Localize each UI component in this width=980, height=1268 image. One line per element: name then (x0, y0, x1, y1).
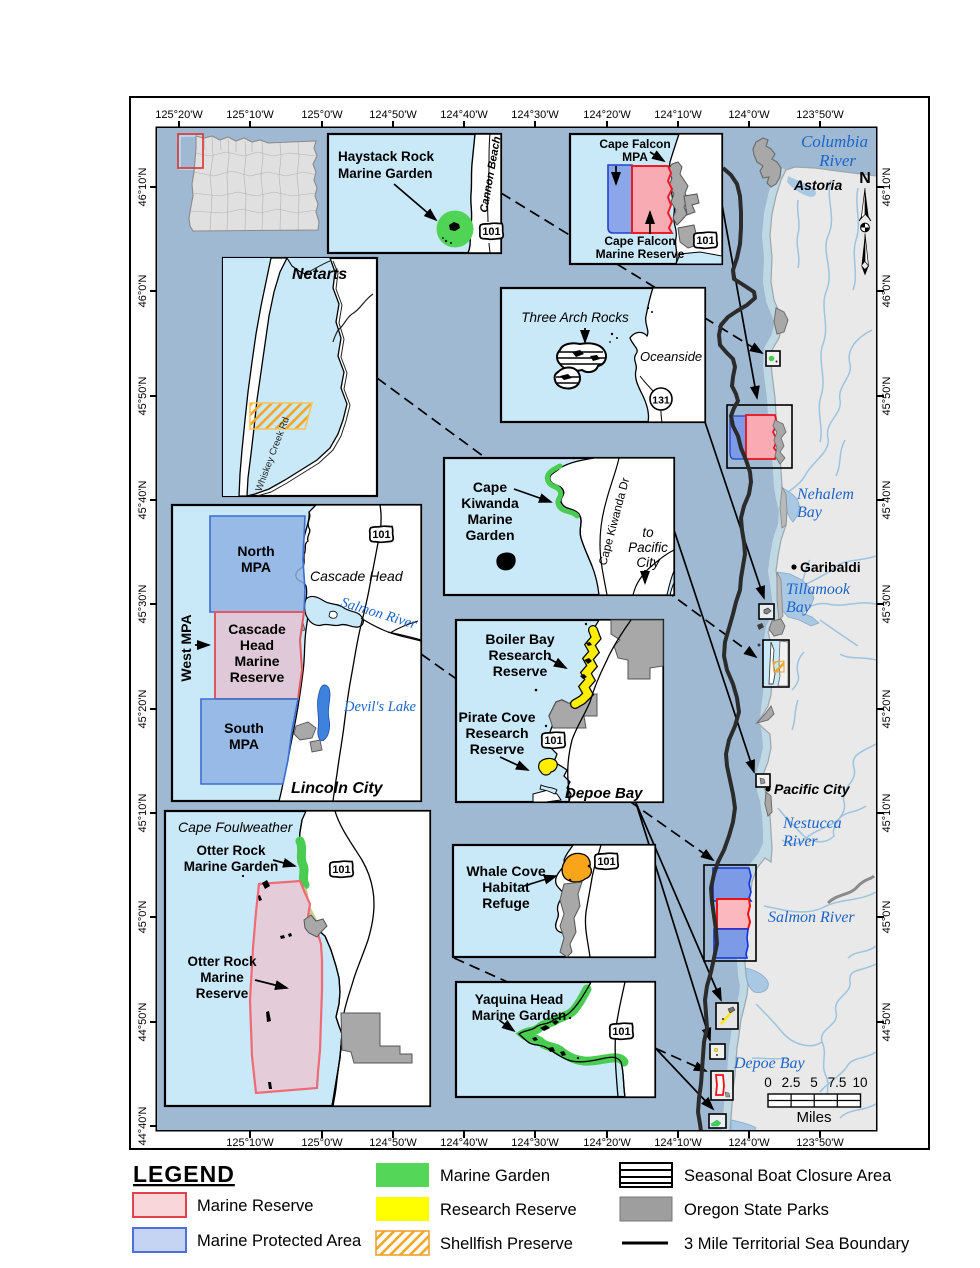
svg-text:N: N (859, 170, 871, 187)
svg-text:Pirate Cove: Pirate Cove (458, 709, 535, 725)
svg-text:Pacific City: Pacific City (774, 781, 851, 797)
svg-text:45°50'N: 45°50'N (137, 376, 149, 415)
svg-text:10: 10 (852, 1075, 867, 1090)
svg-text:Reserve: Reserve (470, 741, 525, 757)
svg-text:MPA: MPA (229, 736, 259, 752)
svg-text:44°50'N: 44°50'N (137, 1002, 149, 1041)
svg-text:7.5: 7.5 (828, 1075, 847, 1090)
svg-text:123°50'W: 123°50'W (796, 109, 844, 121)
svg-text:LEGEND: LEGEND (133, 1161, 235, 1187)
svg-text:Garibaldi: Garibaldi (800, 559, 861, 575)
svg-text:Nehalem: Nehalem (796, 486, 854, 503)
svg-text:Marine Reserve: Marine Reserve (596, 247, 685, 261)
svg-text:Marine Garden: Marine Garden (472, 1008, 567, 1023)
svg-text:125°20'W: 125°20'W (155, 109, 203, 121)
svg-text:to: to (642, 525, 654, 540)
svg-text:Marine: Marine (467, 511, 512, 527)
svg-text:South: South (224, 720, 264, 736)
svg-text:Cape Foulweather: Cape Foulweather (178, 819, 294, 835)
svg-text:Seasonal Boat Closure Area: Seasonal Boat Closure Area (684, 1167, 892, 1185)
svg-text:Tillamook: Tillamook (786, 581, 851, 598)
svg-text:Oregon State Parks: Oregon State Parks (684, 1201, 829, 1219)
svg-text:Research: Research (465, 725, 528, 741)
svg-text:Yaquina Head: Yaquina Head (475, 992, 564, 1007)
svg-text:45°0'N: 45°0'N (137, 901, 149, 934)
svg-text:Pacific: Pacific (628, 540, 668, 555)
svg-text:MPA: MPA (241, 559, 271, 575)
svg-text:44°40'N: 44°40'N (137, 1106, 149, 1145)
svg-text:Marine: Marine (200, 970, 244, 985)
svg-text:124°20'W: 124°20'W (583, 109, 631, 121)
svg-text:5: 5 (810, 1075, 818, 1090)
svg-text:Research: Research (488, 647, 551, 663)
svg-text:45°30'N: 45°30'N (137, 584, 149, 623)
svg-text:Lincoln City: Lincoln City (291, 780, 384, 797)
svg-text:Bay: Bay (786, 599, 812, 616)
svg-text:Cascade Head: Cascade Head (310, 568, 404, 584)
svg-text:124°50'W: 124°50'W (369, 1137, 417, 1149)
svg-text:124°10'W: 124°10'W (654, 109, 702, 121)
svg-text:124°20'W: 124°20'W (583, 1137, 631, 1149)
svg-text:Cape Falcon: Cape Falcon (599, 137, 670, 151)
svg-text:Haystack Rock: Haystack Rock (338, 149, 435, 164)
svg-text:Otter Rock: Otter Rock (196, 843, 266, 858)
svg-text:Salmon River: Salmon River (768, 909, 855, 926)
svg-text:Research Reserve: Research Reserve (440, 1201, 577, 1219)
svg-text:45°20'N: 45°20'N (137, 689, 149, 728)
svg-text:North: North (237, 543, 274, 559)
svg-text:124°0'W: 124°0'W (728, 109, 770, 121)
svg-text:Netarts: Netarts (292, 266, 347, 283)
svg-text:Nestucca: Nestucca (782, 815, 842, 832)
svg-text:Refuge: Refuge (482, 895, 530, 911)
svg-text:Marine Garden: Marine Garden (184, 859, 279, 874)
svg-text:Marine: Marine (234, 653, 279, 669)
svg-text:131: 131 (652, 395, 670, 407)
svg-text:46°10'N: 46°10'N (137, 167, 149, 206)
svg-text:Bay: Bay (797, 504, 823, 521)
svg-text:Whale Cove: Whale Cove (466, 863, 546, 879)
svg-text:Devil's Lake: Devil's Lake (343, 699, 417, 715)
svg-text:Cascade: Cascade (228, 621, 286, 637)
svg-text:46°0'N: 46°0'N (137, 275, 149, 308)
svg-text:Kiwanda: Kiwanda (461, 495, 519, 511)
svg-text:Head: Head (240, 637, 274, 653)
svg-text:124°10'W: 124°10'W (654, 1137, 702, 1149)
svg-text:124°40'W: 124°40'W (440, 109, 488, 121)
svg-text:Shellfish Preserve: Shellfish Preserve (440, 1235, 573, 1253)
svg-text:River: River (782, 833, 818, 850)
svg-text:Reserve: Reserve (230, 669, 285, 685)
svg-text:45°40'N: 45°40'N (137, 480, 149, 519)
svg-text:Reserve: Reserve (493, 663, 548, 679)
svg-text:Marine Reserve: Marine Reserve (197, 1197, 313, 1215)
svg-text:Astoria: Astoria (793, 177, 842, 193)
svg-text:124°0'W: 124°0'W (728, 1137, 770, 1149)
svg-text:125°10'W: 125°10'W (226, 1137, 274, 1149)
svg-text:2.5: 2.5 (782, 1075, 801, 1090)
svg-text:City: City (636, 555, 660, 570)
svg-text:125°0'W: 125°0'W (301, 109, 343, 121)
svg-text:45°10'N: 45°10'N (137, 793, 149, 832)
svg-text:Otter Rock: Otter Rock (187, 954, 257, 969)
svg-text:0: 0 (764, 1075, 772, 1090)
svg-text:Habitat: Habitat (482, 879, 530, 895)
svg-text:124°40'W: 124°40'W (440, 1137, 488, 1149)
svg-text:123°50'W: 123°50'W (796, 1137, 844, 1149)
svg-text:River: River (818, 151, 856, 170)
svg-text:3 Mile Territorial Sea Boundar: 3 Mile Territorial Sea Boundary (684, 1235, 910, 1253)
svg-text:124°30'W: 124°30'W (511, 109, 559, 121)
svg-text:Marine Garden: Marine Garden (338, 166, 433, 181)
svg-text:124°30'W: 124°30'W (511, 1137, 559, 1149)
svg-text:Columbia: Columbia (801, 132, 868, 151)
svg-text:Marine Protected Area: Marine Protected Area (197, 1232, 362, 1250)
svg-text:124°50'W: 124°50'W (369, 109, 417, 121)
svg-text:Depoe Bay: Depoe Bay (565, 785, 643, 802)
svg-text:West MPA: West MPA (178, 614, 194, 681)
svg-text:Marine Garden: Marine Garden (440, 1167, 550, 1185)
svg-text:Garden: Garden (465, 527, 514, 543)
svg-text:Reserve: Reserve (196, 986, 249, 1001)
svg-text:Depoe Bay: Depoe Bay (733, 1055, 806, 1072)
svg-text:Miles: Miles (796, 1109, 831, 1126)
svg-text:Three Arch Rocks: Three Arch Rocks (521, 310, 629, 325)
svg-text:MPA: MPA (622, 150, 648, 164)
svg-text:Cape Falcon: Cape Falcon (604, 234, 675, 248)
svg-text:Boiler Bay: Boiler Bay (485, 631, 554, 647)
svg-text:Cape: Cape (473, 479, 507, 495)
svg-text:125°0'W: 125°0'W (301, 1137, 343, 1149)
svg-text:Oceanside: Oceanside (640, 349, 702, 364)
svg-text:125°10'W: 125°10'W (226, 109, 274, 121)
